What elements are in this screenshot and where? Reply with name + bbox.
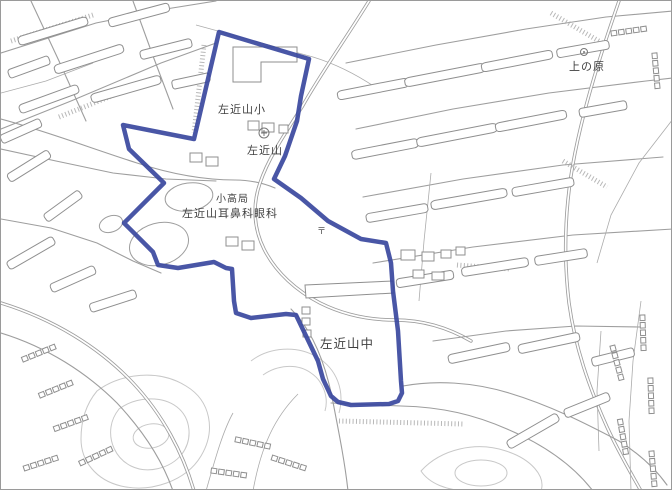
park-green: [97, 212, 125, 235]
contours-layer: [81, 349, 542, 490]
apartment-cluster-southeast: [448, 332, 636, 449]
hatch-layer: [11, 13, 609, 424]
label-ent-eye-clinic: 左近山耳鼻科眼科: [182, 206, 278, 220]
map-canvas[interactable]: 〒 左近山小 左近山 小高局 左近山耳鼻科眼科 左近山中 上の原: [0, 0, 672, 490]
post-office-icon: 〒: [317, 226, 326, 236]
label-sakonyama-junior-high: 左近山中: [320, 336, 374, 351]
apartment-cluster-northwest: [1, 3, 211, 144]
label-sakonyama: 左近山: [247, 144, 283, 157]
label-uenohara: 上の原: [569, 60, 605, 73]
apartment-cluster-east: [337, 40, 628, 288]
label-post-office: 小高局: [216, 192, 249, 205]
label-sakonyama-elementary: 左近山小: [218, 103, 266, 116]
junior-high-building: [305, 281, 394, 298]
base-map: 〒 左近山小 左近山 小高局 左近山耳鼻科眼科 左近山中 上の原: [1, 1, 672, 490]
